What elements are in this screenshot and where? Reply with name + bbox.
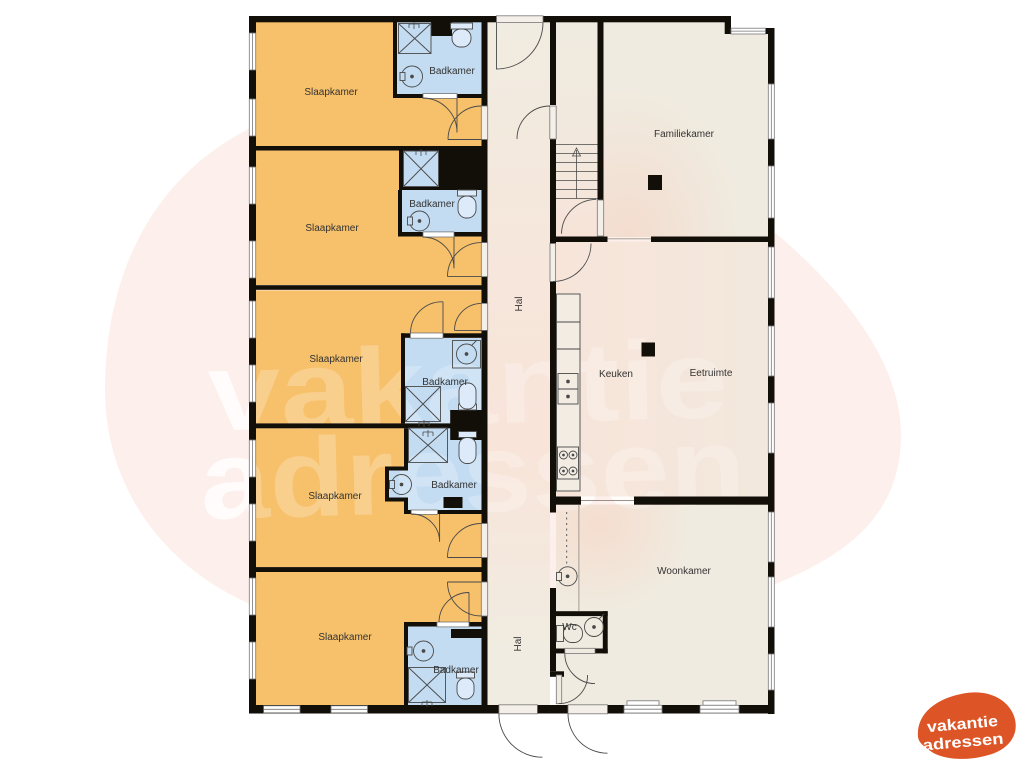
- svg-text:Slaapkamer: Slaapkamer: [305, 223, 359, 234]
- svg-text:Badkamer: Badkamer: [429, 66, 475, 77]
- svg-text:Familiekamer: Familiekamer: [654, 129, 715, 140]
- svg-text:Slaapkamer: Slaapkamer: [309, 354, 363, 365]
- svg-text:Wc: Wc: [562, 622, 576, 633]
- svg-text:Keuken: Keuken: [599, 369, 633, 380]
- svg-text:Slaapkamer: Slaapkamer: [304, 87, 358, 98]
- svg-text:Badkamer: Badkamer: [422, 377, 468, 388]
- svg-text:Hal: Hal: [513, 636, 524, 651]
- svg-text:Slaapkamer: Slaapkamer: [318, 632, 372, 643]
- svg-text:Hal: Hal: [514, 296, 525, 311]
- svg-text:Badkamer: Badkamer: [431, 480, 477, 491]
- svg-text:Badkamer: Badkamer: [409, 199, 455, 210]
- svg-text:Woonkamer: Woonkamer: [657, 566, 711, 577]
- svg-text:Slaapkamer: Slaapkamer: [308, 491, 362, 502]
- svg-text:Badkamer: Badkamer: [433, 665, 479, 676]
- svg-text:Eetruimte: Eetruimte: [690, 368, 733, 379]
